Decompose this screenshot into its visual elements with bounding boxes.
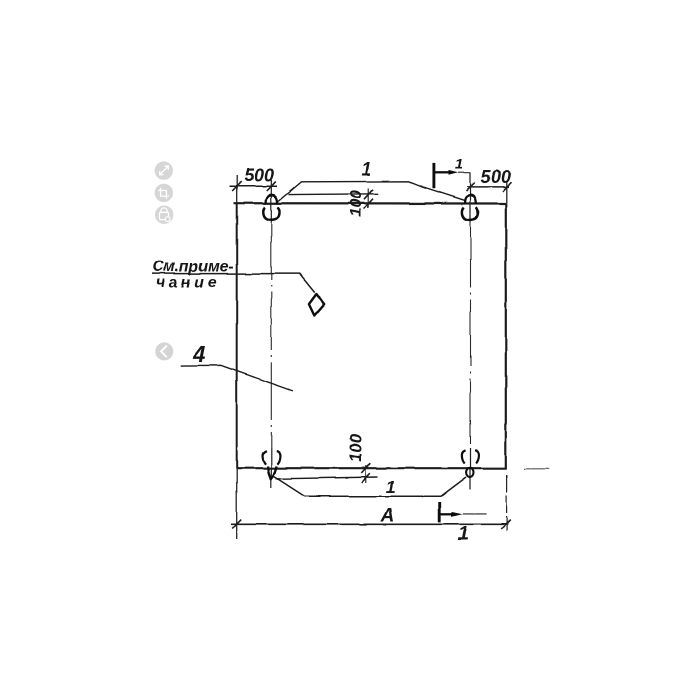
svg-text:1: 1 <box>386 478 395 497</box>
svg-text:1: 1 <box>361 160 371 180</box>
svg-text:100: 100 <box>346 433 365 462</box>
svg-text:А: А <box>380 506 395 527</box>
svg-text:1: 1 <box>455 156 463 173</box>
svg-text:4: 4 <box>192 341 206 367</box>
svg-text:500: 500 <box>244 166 274 186</box>
svg-text:чание: чание <box>156 275 220 292</box>
svg-text:500: 500 <box>480 167 510 187</box>
svg-text:100: 100 <box>348 190 365 217</box>
svg-text:1: 1 <box>457 523 468 545</box>
